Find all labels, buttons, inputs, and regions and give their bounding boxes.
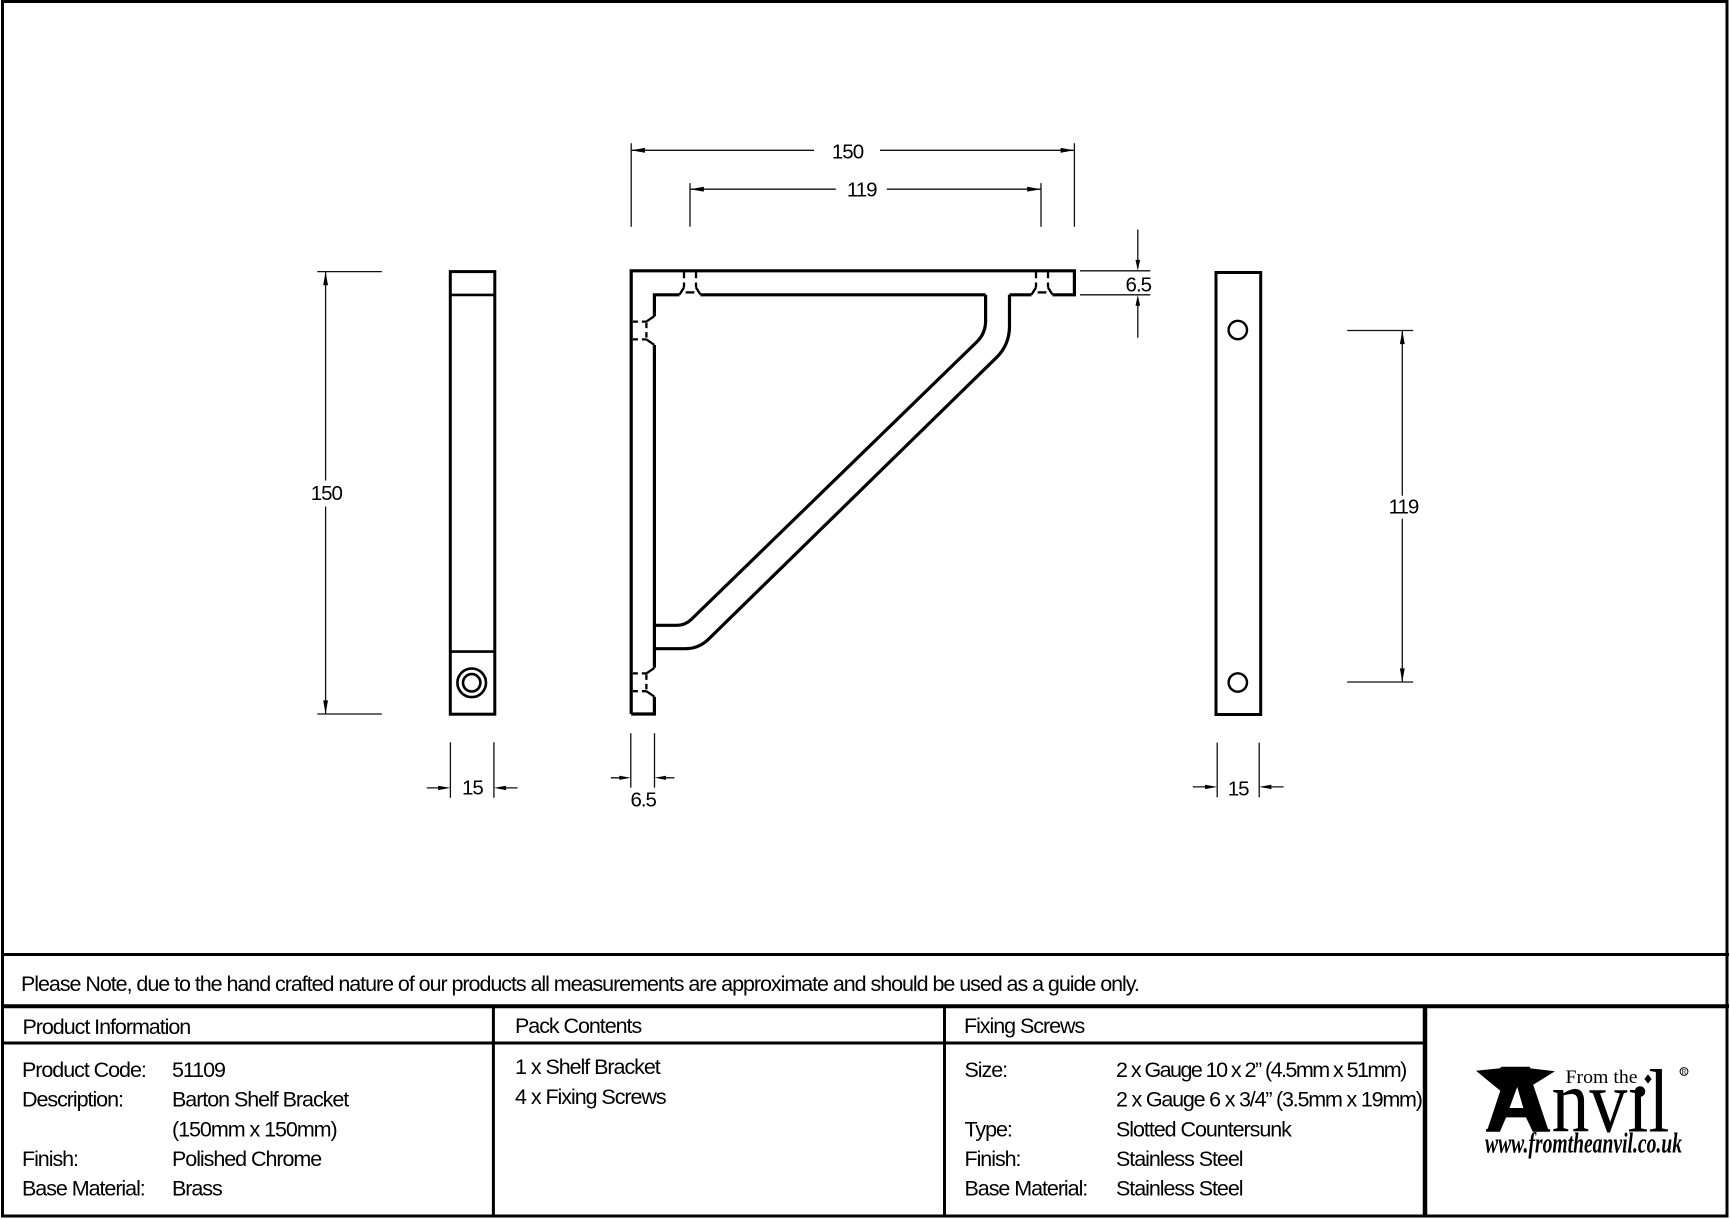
svg-text:Barton Shelf Bracket: Barton Shelf Bracket	[172, 1088, 349, 1112]
svg-text:Size:: Size:	[965, 1058, 1008, 1082]
svg-text:Fixing Screws: Fixing Screws	[964, 1014, 1084, 1038]
svg-text:6.5: 6.5	[1126, 273, 1152, 296]
svg-text:15: 15	[462, 777, 483, 800]
svg-text:6.5: 6.5	[630, 789, 656, 812]
svg-text:Type:: Type:	[965, 1117, 1012, 1141]
svg-text:Stainless Steel: Stainless Steel	[1116, 1177, 1243, 1201]
svg-text:Base Material:: Base Material:	[22, 1177, 145, 1201]
svg-text:Stainless Steel: Stainless Steel	[1116, 1147, 1243, 1171]
svg-text:Pack Contents: Pack Contents	[515, 1014, 641, 1038]
svg-text:Base Material:: Base Material:	[965, 1177, 1088, 1201]
svg-text:1 x Shelf Bracket: 1 x Shelf Bracket	[515, 1055, 661, 1079]
svg-text:119: 119	[1389, 496, 1419, 519]
svg-text:4 x Fixing Screws: 4 x Fixing Screws	[515, 1085, 666, 1109]
svg-text:Brass: Brass	[172, 1177, 222, 1201]
svg-text:Finish:: Finish:	[22, 1147, 78, 1171]
svg-text:Polished Chrome: Polished Chrome	[172, 1147, 321, 1171]
svg-text:15: 15	[1228, 778, 1249, 801]
svg-text:Slotted Countersunk: Slotted Countersunk	[1116, 1117, 1292, 1141]
svg-text:Description:: Description:	[22, 1088, 123, 1112]
svg-text:150: 150	[311, 482, 343, 505]
svg-text:Product Information: Product Information	[23, 1015, 191, 1039]
svg-text:2 x Gauge 10 x 2” (4.5mm x 51m: 2 x Gauge 10 x 2” (4.5mm x 51mm)	[1116, 1058, 1406, 1082]
svg-text:www.fromtheanvil.co.uk: www.fromtheanvil.co.uk	[1485, 1129, 1682, 1160]
svg-text:119: 119	[847, 179, 877, 202]
svg-text:51109: 51109	[172, 1058, 225, 1082]
svg-text:Please Note, due to the hand c: Please Note, due to the hand crafted nat…	[21, 972, 1139, 996]
svg-text:150: 150	[832, 141, 864, 164]
svg-text:2 x Gauge 6 x 3/4” (3.5mm x 19: 2 x Gauge 6 x 3/4” (3.5mm x 19mm)	[1116, 1088, 1422, 1112]
svg-text:Product Code:: Product Code:	[22, 1058, 146, 1082]
svg-text:R: R	[1681, 1067, 1686, 1076]
svg-text:(150mm x 150mm): (150mm x 150mm)	[172, 1117, 337, 1141]
svg-text:Finish:: Finish:	[965, 1147, 1021, 1171]
